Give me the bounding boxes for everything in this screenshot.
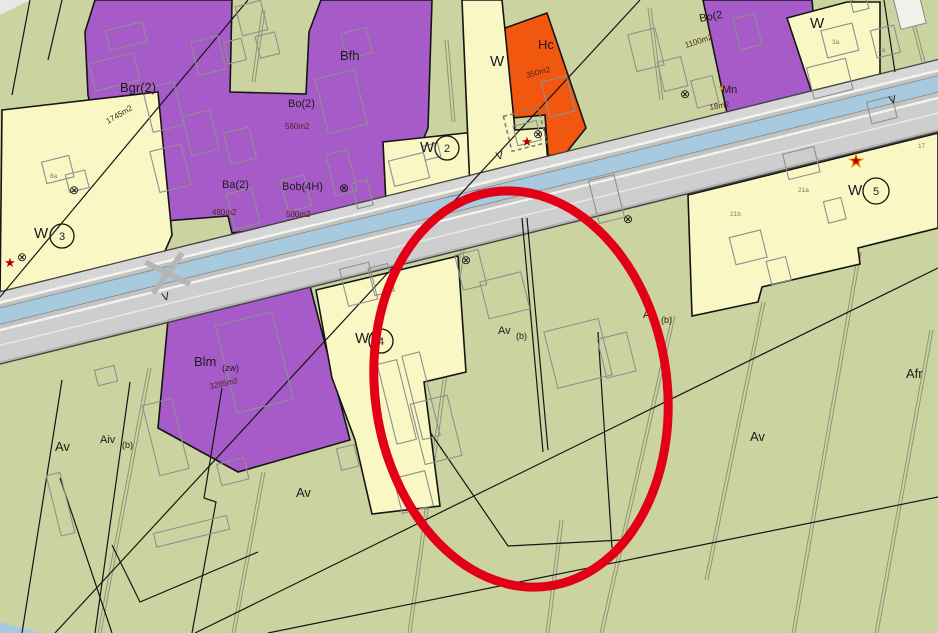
crossed-circle-icon: ⊗	[533, 127, 543, 141]
zone-label-hc: Hc	[538, 37, 554, 52]
w-label-3: W	[34, 225, 49, 242]
zone-label-aiv: Aiv	[100, 434, 116, 446]
crossed-circle-icon: ⊗	[623, 212, 633, 226]
zone-label-av-left: Av	[55, 439, 70, 454]
w-label-5: W	[848, 182, 863, 199]
zone-label-av-center: Av	[296, 485, 311, 500]
zone-label-avb-center: Av	[498, 325, 511, 337]
zone-label-bgr: Bgr(2)	[120, 80, 156, 95]
house-number-17: 17	[918, 143, 926, 150]
zone-label-av-right: Av	[750, 429, 765, 444]
w-label-2: W	[420, 139, 435, 156]
zone-label-avb-right-sub: (b)	[661, 315, 672, 325]
zone-label-aiv-sub: (b)	[122, 440, 133, 450]
house-number-8a: 8a	[50, 173, 58, 180]
area-label-ba2: 480m2	[212, 208, 237, 217]
area-label-bob4: 500m2	[286, 210, 311, 219]
house-number-2a: 2a	[878, 47, 886, 54]
w-label-4: W	[355, 330, 370, 347]
house-number-3a: 3a	[832, 39, 840, 46]
zoning-map-canvas: ⊗ ⊗ ⊗ ⊗ ⊗ ⊗ ⊗ ★ ★ ★ ★ ★ Bgr(2) 1745m2 Bf…	[0, 0, 938, 633]
site-number-2: 2	[444, 143, 450, 155]
star-marker-icon: ★	[4, 255, 16, 270]
area-label-bo2: 560m2	[285, 122, 310, 131]
zone-label-bob4: Bob(4H)	[282, 181, 323, 193]
zone-label-blm: Blm	[194, 354, 216, 369]
star-marker-icon: ★	[850, 153, 862, 168]
crossed-circle-icon: ⊗	[17, 250, 27, 264]
w-label-strip: W	[490, 53, 505, 70]
site-number-5: 5	[873, 186, 879, 198]
zone-label-afr: Afr	[906, 366, 923, 381]
crossed-circle-icon: ⊗	[339, 181, 349, 195]
house-number-21a: 21a	[798, 187, 809, 194]
zone-label-blm-sub: (zw)	[222, 363, 239, 373]
site-number-3: 3	[59, 231, 65, 243]
zone-label-mn: Mn	[722, 84, 737, 96]
crossed-circle-icon: ⊗	[461, 253, 471, 267]
crossed-circle-icon: ⊗	[69, 183, 79, 197]
zone-label-ba2: Ba(2)	[222, 179, 249, 191]
zoning-map: ⊗ ⊗ ⊗ ⊗ ⊗ ⊗ ⊗ ★ ★ ★ ★ ★ Bgr(2) 1745m2 Bf…	[0, 0, 938, 633]
w-label-topright: W	[810, 15, 825, 32]
star-marker-icon: ★	[521, 134, 533, 149]
crossed-circle-icon: ⊗	[680, 87, 690, 101]
zone-label-bo2: Bo(2)	[288, 98, 315, 110]
zone-label-avb-center-sub: (b)	[516, 331, 527, 341]
house-number-21b: 21b	[730, 211, 741, 218]
zone-label-bfh: Bfh	[340, 48, 360, 63]
